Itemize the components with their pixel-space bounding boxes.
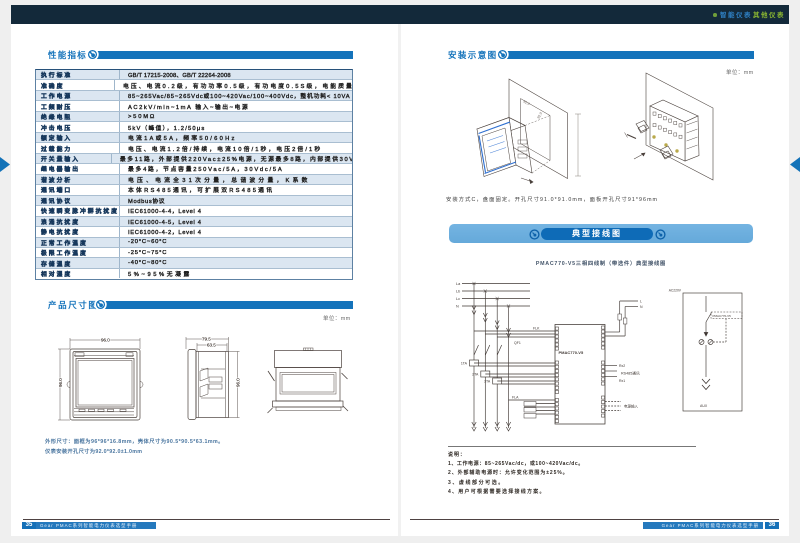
svg-text:PMAC770-V5: PMAC770-V5 (713, 314, 732, 318)
svg-text:RS485通讯: RS485通讯 (621, 371, 640, 376)
svg-text:92.0: 92.0 (536, 112, 543, 120)
svg-text:96.0: 96.0 (101, 338, 110, 343)
svg-text:Rx2: Rx2 (619, 364, 625, 368)
svg-text:N: N (456, 305, 459, 309)
svg-text:Lb: Lb (456, 290, 460, 294)
svg-text:2TA: 2TA (472, 373, 479, 377)
svg-text:AC220V: AC220V (669, 289, 682, 293)
svg-text:Rx1: Rx1 (619, 379, 625, 383)
svg-text:63.5: 63.5 (207, 343, 216, 348)
svg-text:96.0: 96.0 (236, 378, 241, 387)
svg-text:AUX: AUX (700, 404, 708, 408)
svg-text:N: N (640, 305, 643, 309)
svg-text:FLA: FLA (512, 396, 519, 400)
svg-text:La: La (456, 282, 461, 286)
svg-text:3TA: 3TA (484, 380, 491, 384)
svg-text:Lc: Lc (456, 297, 460, 301)
svg-text:96.0: 96.0 (58, 378, 63, 387)
svg-text:PMAC770-V5: PMAC770-V5 (559, 350, 584, 355)
svg-text:QF1: QF1 (514, 341, 521, 345)
svg-text:1TA: 1TA (461, 362, 468, 366)
svg-text:FLK: FLK (533, 327, 540, 331)
svg-text:92.0: 92.0 (523, 99, 531, 106)
svg-text:电源输入: 电源输入 (624, 404, 638, 409)
svg-text:79.5: 79.5 (202, 337, 211, 342)
svg-text:L: L (640, 300, 642, 304)
